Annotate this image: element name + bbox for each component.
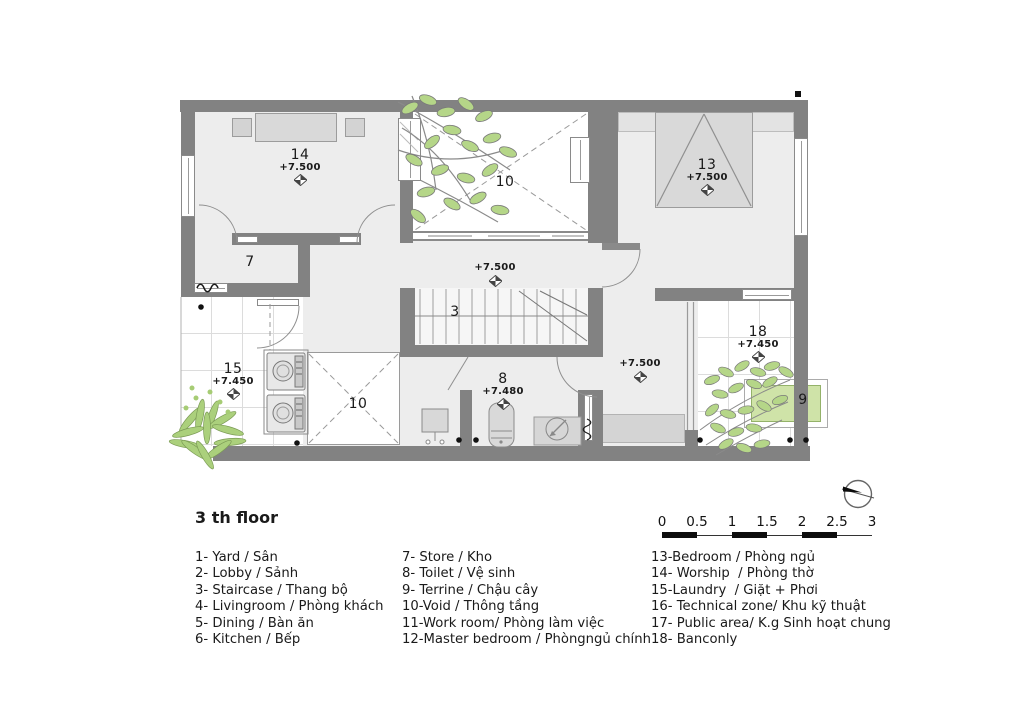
void-top-floor <box>413 112 588 232</box>
scale-tick: 2 <box>798 514 807 530</box>
elevation-marker-icon <box>752 351 765 363</box>
room-elevation: +7.500 <box>608 359 672 370</box>
door-leaf <box>602 243 640 250</box>
room-number: 10 <box>473 175 537 190</box>
shaft-slot <box>584 394 593 441</box>
room-number: 15 <box>201 362 265 377</box>
scale-tick: 2.5 <box>826 514 847 530</box>
room-elevation: +7.500 <box>675 173 739 184</box>
room-number: 9 <box>771 393 835 408</box>
window-sill <box>194 283 228 293</box>
window-planter-box <box>398 118 421 181</box>
window <box>570 137 590 183</box>
scale-tick: 3 <box>868 514 877 530</box>
legend-item: 5- Dining / Bàn ăn <box>195 616 383 632</box>
legend-item: 10-Void / Thông tầng <box>402 599 651 615</box>
room-elevation: +7.480 <box>471 387 535 398</box>
legend-item: 2- Lobby / Sảnh <box>195 566 383 582</box>
legend-item: 1- Yard / Sân <box>195 550 383 566</box>
room-label-8: 8 +7.480 <box>471 372 535 410</box>
elevation-marker-icon <box>497 398 510 410</box>
room-number: 7 <box>218 255 282 270</box>
scale-segment <box>732 532 767 538</box>
elevation-marker-icon <box>227 388 240 400</box>
legend-item: 6- Kitchen / Bếp <box>195 632 383 648</box>
scale-tick: 1 <box>728 514 737 530</box>
side-table-right <box>345 118 365 137</box>
wall <box>588 288 603 357</box>
scale-tick: 0 <box>658 514 667 530</box>
legend-item: 4- Livingroom / Phòng khách <box>195 599 383 615</box>
room-number: 10 <box>326 397 390 412</box>
legend-column-2: 7- Store / Kho 8- Toilet / Vệ sinh 9- Te… <box>402 550 651 648</box>
elevation-marker-icon <box>701 184 714 196</box>
scale-segment <box>802 532 837 538</box>
room-label-stairs: 3 <box>423 305 487 320</box>
legend-item: 16- Technical zone/ Khu kỹ thuật <box>651 599 891 615</box>
corridor-elevation-label: +7.500 <box>463 263 527 287</box>
wall <box>685 430 698 446</box>
room-label-15: 15 +7.450 <box>201 362 265 400</box>
wall <box>400 345 603 357</box>
legend-item: 8- Toilet / Vệ sinh <box>402 566 651 582</box>
door-leaf <box>339 236 360 243</box>
door-leaf <box>257 299 299 306</box>
scale-segment <box>662 532 697 538</box>
room-elevation: +7.450 <box>726 340 790 351</box>
scale-tick: 1.5 <box>756 514 777 530</box>
room-elevation: +7.500 <box>268 163 332 174</box>
legend-item: 3- Staircase / Thang bộ <box>195 583 383 599</box>
elevation-marker-icon <box>634 371 647 383</box>
legend-item: 7- Store / Kho <box>402 550 651 566</box>
elevation-marker-icon <box>294 174 307 186</box>
room-number: 14 <box>268 148 332 163</box>
wardrobe <box>600 414 685 443</box>
legend-column-3: 13-Bedroom / Phòng ngủ 14- Worship / Phò… <box>651 550 891 648</box>
legend-item: 13-Bedroom / Phòng ngủ <box>651 550 891 566</box>
midroom-elevation-label: +7.500 <box>608 359 672 383</box>
altar-table <box>255 113 337 142</box>
room-label-18: 18 +7.450 <box>726 325 790 363</box>
room-label-void-bottom: 10 <box>326 397 390 412</box>
elevation-marker-icon <box>489 275 502 287</box>
wall <box>213 446 810 461</box>
scale-tick: 0.5 <box>686 514 707 530</box>
legend-item: 15-Laundry / Giặt + Phơi <box>651 583 891 599</box>
side-table-left <box>232 118 252 137</box>
scale-bar: 0 0.5 1 1.5 2 2.5 3 <box>648 504 888 546</box>
room-number: 18 <box>726 325 790 340</box>
legend-item: 11-Work room/ Phòng làm việc <box>402 616 651 632</box>
window <box>181 155 195 217</box>
wall <box>180 100 808 112</box>
legend-item: 17- Public area/ K.g Sinh hoạt chung <box>651 616 891 632</box>
legend-item: 14- Worship / Phòng thờ <box>651 566 891 582</box>
room-elevation: +7.450 <box>201 377 265 388</box>
room-label-void-top: 10 <box>473 175 537 190</box>
sheet-title: 3 th floor <box>195 508 278 527</box>
room-number: 13 <box>675 158 739 173</box>
legend-item: 12-Master bedroom / Phòngngủ chính <box>402 632 651 648</box>
legend-column-1: 1- Yard / Sân 2- Lobby / Sảnh 3- Stairca… <box>195 550 383 648</box>
room-number: 8 <box>471 372 535 387</box>
room-label-9: 9 <box>771 393 835 408</box>
window <box>742 289 792 300</box>
room-label-13: 13 +7.500 <box>675 158 739 196</box>
room-number: 3 <box>423 305 487 320</box>
legend-item: 9- Terrine / Chậu cây <box>402 583 651 599</box>
room-label-14: 14 +7.500 <box>268 148 332 186</box>
wall <box>588 112 618 243</box>
door-leaf <box>237 236 258 243</box>
window <box>794 138 808 236</box>
legend-item: 18- Banconly <box>651 632 891 648</box>
void-railing <box>413 231 588 241</box>
room-elevation: +7.500 <box>463 263 527 274</box>
room-label-7: 7 <box>218 255 282 270</box>
